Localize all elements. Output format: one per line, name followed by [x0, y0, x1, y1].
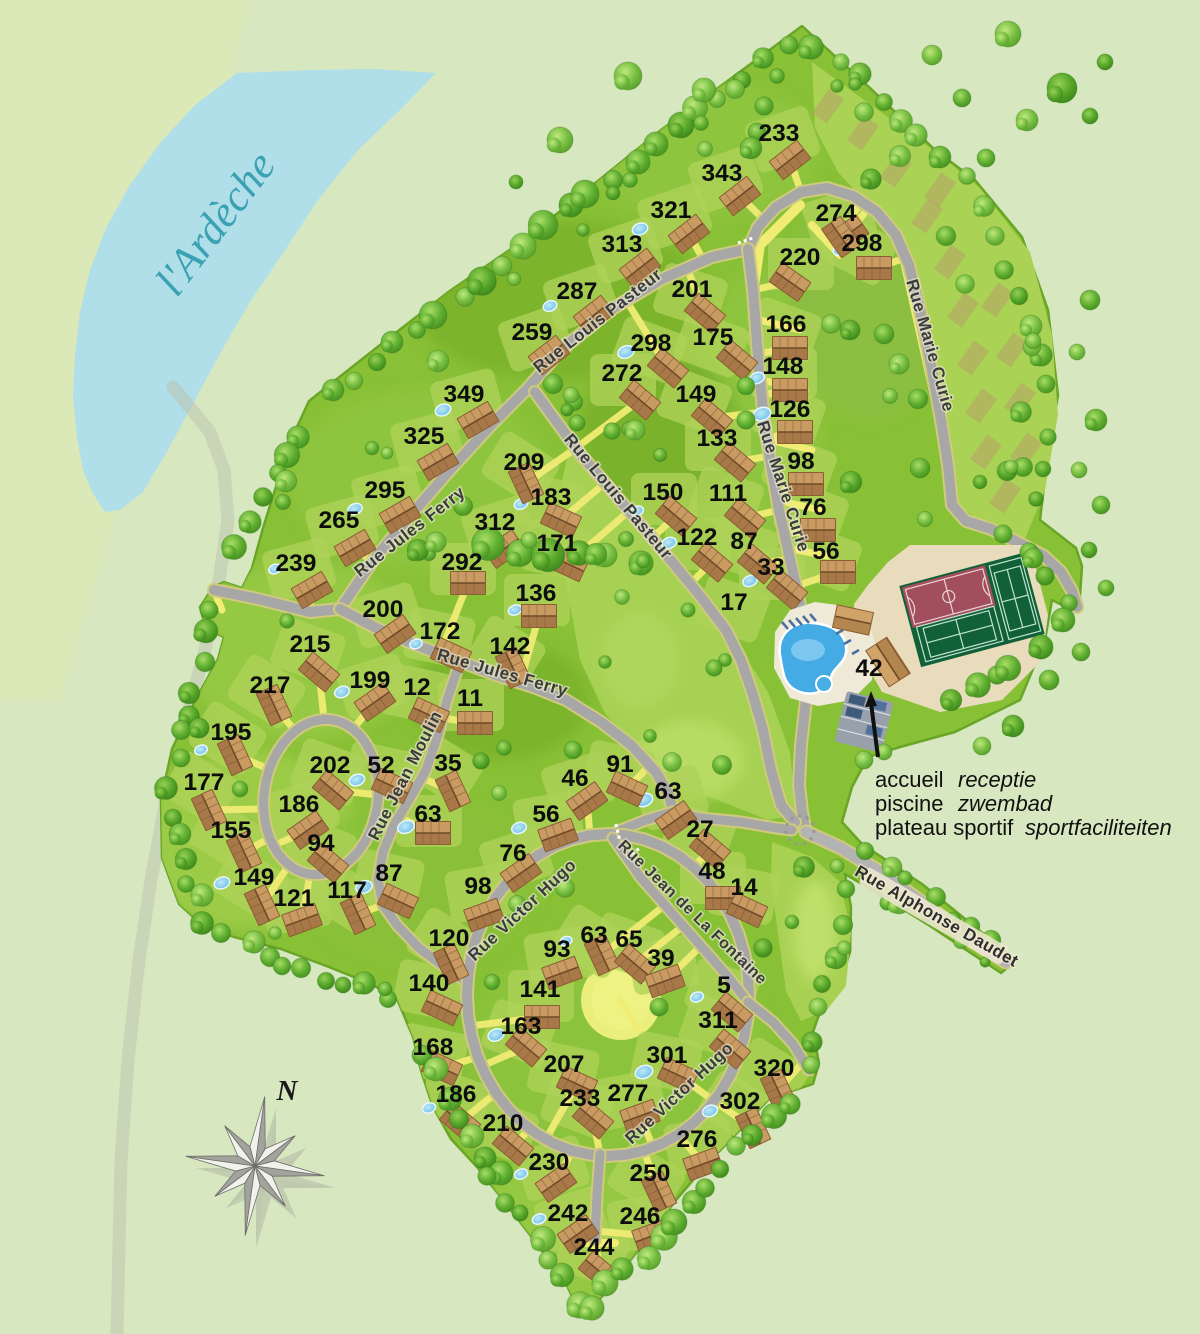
svg-text:63: 63: [654, 778, 681, 805]
svg-text:220: 220: [780, 244, 821, 271]
svg-text:149: 149: [234, 864, 275, 891]
svg-text:343: 343: [702, 160, 743, 187]
svg-text:133: 133: [697, 425, 738, 452]
svg-text:320: 320: [754, 1055, 795, 1082]
svg-text:312: 312: [475, 509, 516, 536]
svg-text:5: 5: [717, 972, 731, 999]
svg-text:202: 202: [310, 752, 351, 779]
svg-text:63: 63: [580, 922, 607, 949]
svg-text:207: 207: [544, 1051, 585, 1078]
svg-text:136: 136: [516, 580, 557, 607]
svg-text:150: 150: [643, 479, 684, 506]
svg-text:142: 142: [490, 633, 531, 660]
svg-text:199: 199: [350, 667, 391, 694]
svg-text:76: 76: [499, 840, 526, 867]
svg-text:277: 277: [608, 1080, 649, 1107]
svg-text:98: 98: [787, 448, 814, 475]
svg-text:287: 287: [557, 278, 598, 305]
svg-text:272: 272: [602, 360, 643, 387]
svg-text:plateau sportif: plateau sportif: [875, 815, 1014, 840]
svg-text:141: 141: [520, 976, 561, 1003]
svg-text:172: 172: [420, 618, 461, 645]
svg-text:311: 311: [698, 1007, 738, 1034]
svg-text:N: N: [276, 1075, 299, 1107]
svg-text:177: 177: [184, 769, 225, 796]
svg-text:zwembad: zwembad: [957, 791, 1053, 816]
svg-text:35: 35: [434, 750, 461, 777]
svg-text:63: 63: [414, 801, 441, 828]
svg-text:210: 210: [483, 1110, 524, 1137]
svg-text:292: 292: [442, 549, 483, 576]
svg-text:259: 259: [512, 319, 553, 346]
svg-text:148: 148: [763, 353, 804, 380]
svg-text:250: 250: [630, 1160, 671, 1187]
svg-text:163: 163: [501, 1013, 542, 1040]
svg-text:166: 166: [766, 311, 807, 338]
svg-text:186: 186: [436, 1081, 477, 1108]
svg-text:321: 321: [651, 197, 692, 224]
svg-text:274: 274: [816, 200, 857, 227]
svg-text:sportfaciliteiten: sportfaciliteiten: [1025, 815, 1172, 840]
svg-text:87: 87: [375, 860, 402, 887]
svg-text:230: 230: [529, 1149, 570, 1176]
svg-text:receptie: receptie: [958, 767, 1036, 792]
svg-text:122: 122: [677, 524, 718, 551]
svg-text:171: 171: [537, 530, 578, 557]
svg-text:14: 14: [730, 874, 758, 901]
svg-text:65: 65: [615, 926, 642, 953]
svg-text:12: 12: [403, 674, 430, 701]
svg-text:183: 183: [531, 484, 572, 511]
svg-text:11: 11: [457, 685, 483, 712]
svg-text:accueil: accueil: [875, 767, 943, 792]
svg-text:233: 233: [560, 1085, 601, 1112]
svg-text:126: 126: [770, 396, 811, 423]
svg-text:246: 246: [620, 1203, 661, 1230]
svg-text:265: 265: [319, 507, 360, 534]
svg-text:186: 186: [279, 791, 320, 818]
svg-text:313: 313: [602, 231, 643, 258]
svg-text:298: 298: [842, 230, 883, 257]
svg-text:56: 56: [532, 801, 559, 828]
svg-text:155: 155: [211, 817, 252, 844]
svg-text:33: 33: [757, 554, 784, 581]
svg-text:48: 48: [698, 858, 725, 885]
svg-text:117: 117: [327, 877, 367, 904]
svg-text:244: 244: [574, 1234, 615, 1261]
svg-text:121: 121: [274, 885, 315, 912]
svg-text:56: 56: [812, 538, 839, 565]
svg-text:298: 298: [631, 330, 672, 357]
svg-text:217: 217: [250, 672, 291, 699]
svg-text:120: 120: [429, 925, 470, 952]
svg-text:295: 295: [365, 477, 406, 504]
svg-text:46: 46: [561, 765, 588, 792]
svg-text:276: 276: [677, 1126, 718, 1153]
svg-text:93: 93: [543, 936, 570, 963]
svg-text:42: 42: [855, 655, 882, 682]
svg-text:piscine: piscine: [875, 791, 943, 816]
svg-text:200: 200: [363, 596, 404, 623]
svg-text:242: 242: [548, 1200, 589, 1227]
svg-text:209: 209: [504, 449, 545, 476]
svg-text:215: 215: [290, 631, 331, 658]
svg-text:140: 140: [409, 970, 450, 997]
svg-text:233: 233: [759, 120, 800, 147]
svg-text:39: 39: [647, 945, 674, 972]
svg-text:325: 325: [404, 423, 445, 450]
svg-text:91: 91: [606, 751, 633, 778]
svg-text:195: 195: [211, 719, 252, 746]
svg-text:17: 17: [720, 589, 747, 616]
svg-text:27: 27: [686, 816, 713, 843]
svg-text:239: 239: [276, 550, 317, 577]
svg-text:94: 94: [307, 830, 335, 857]
svg-text:98: 98: [464, 873, 491, 900]
svg-text:175: 175: [693, 324, 734, 351]
svg-text:52: 52: [367, 752, 394, 779]
svg-text:87: 87: [730, 528, 757, 555]
svg-text:168: 168: [413, 1034, 454, 1061]
svg-text:349: 349: [444, 381, 485, 408]
svg-text:301: 301: [647, 1042, 688, 1069]
svg-text:201: 201: [672, 276, 713, 303]
svg-text:111: 111: [709, 480, 747, 507]
svg-text:76: 76: [799, 494, 826, 521]
svg-text:149: 149: [676, 381, 717, 408]
svg-text:302: 302: [720, 1088, 761, 1115]
